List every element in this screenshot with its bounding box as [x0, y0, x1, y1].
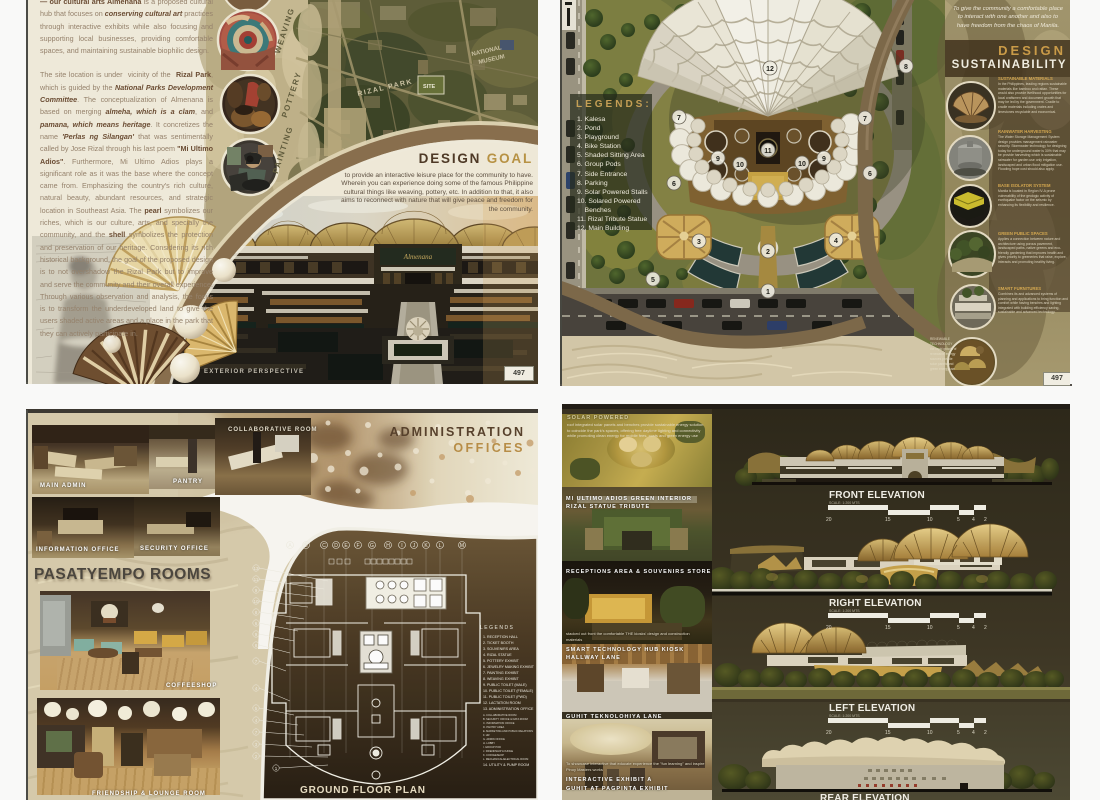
svg-text:5: 5: [651, 277, 655, 284]
svg-text:15: 15: [885, 625, 891, 631]
svg-text:renewable energy: renewable energy: [930, 352, 956, 356]
svg-text:sources provide: sources provide: [930, 357, 953, 361]
svg-text:4: 4: [972, 517, 975, 523]
svg-text:SITE: SITE: [423, 84, 436, 90]
svg-text:15: 15: [885, 730, 891, 736]
svg-text:10: 10: [798, 161, 806, 168]
svg-text:12: 12: [766, 66, 774, 73]
svg-text:2: 2: [766, 249, 770, 256]
svg-text:9: 9: [716, 156, 720, 163]
svg-text:10: 10: [927, 517, 933, 523]
svg-text:1: 1: [766, 289, 770, 296]
svg-text:5: 5: [957, 730, 960, 736]
svg-text:6: 6: [672, 181, 676, 188]
svg-text:TECHNOLOGY: TECHNOLOGY: [930, 342, 953, 346]
svg-text:5: 5: [957, 517, 960, 523]
svg-text:Almenana: Almenana: [403, 253, 433, 261]
svg-text:20: 20: [826, 517, 832, 523]
svg-text:the rapid growth of: the rapid growth of: [930, 347, 957, 351]
svg-text:10: 10: [927, 625, 933, 631]
svg-text:20: 20: [826, 730, 832, 736]
svg-text:7: 7: [677, 115, 681, 122]
svg-text:10: 10: [736, 162, 744, 169]
svg-text:8: 8: [904, 64, 908, 71]
svg-text:solar panels and: solar panels and: [930, 362, 954, 366]
svg-text:11: 11: [764, 148, 772, 155]
svg-text:green energy use: green energy use: [930, 367, 955, 371]
svg-text:4: 4: [972, 730, 975, 736]
svg-text:5: 5: [957, 625, 960, 631]
svg-text:20: 20: [826, 625, 832, 631]
svg-text:10: 10: [927, 730, 933, 736]
svg-text:2: 2: [984, 625, 987, 631]
svg-text:2: 2: [984, 730, 987, 736]
svg-text:7: 7: [863, 116, 867, 123]
svg-text:3: 3: [697, 239, 701, 246]
svg-text:6: 6: [868, 171, 872, 178]
svg-text:15: 15: [885, 517, 891, 523]
svg-text:2: 2: [984, 517, 987, 523]
svg-text:RENEWABLE: RENEWABLE: [930, 337, 950, 341]
svg-text:4: 4: [972, 625, 975, 631]
svg-text:4: 4: [834, 238, 838, 245]
svg-text:9: 9: [822, 156, 826, 163]
